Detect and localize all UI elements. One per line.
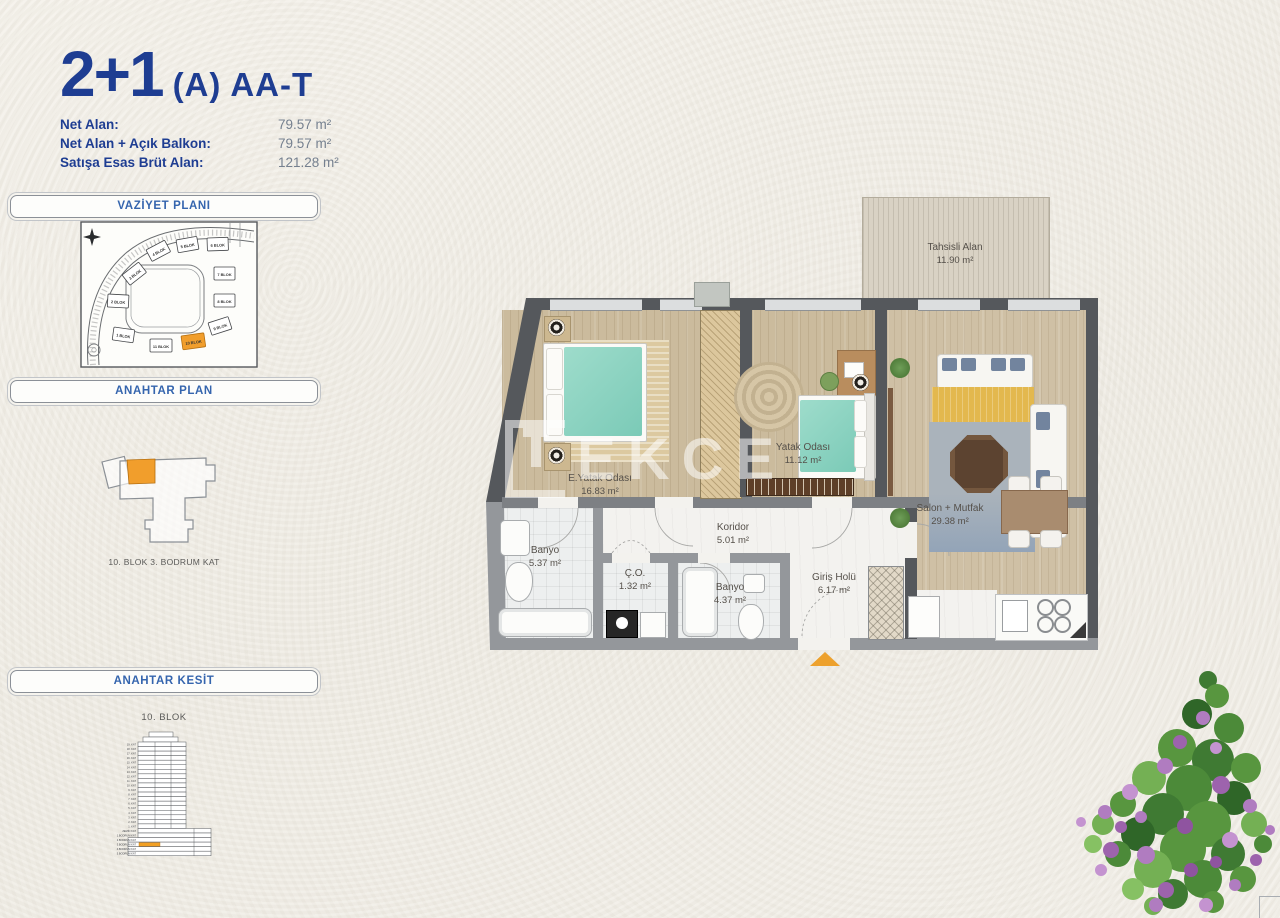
- bedroom-label: Yatak Odası 11.12 m²: [753, 442, 853, 466]
- washing-machine: [606, 610, 638, 638]
- bath2-toilet: [738, 604, 764, 640]
- plant-foliage: [1084, 671, 1272, 915]
- dining-chair-3: [1008, 530, 1030, 548]
- key-plan-highlighted-unit: [127, 459, 155, 484]
- bathroom2-label: Banyo 4.37 m²: [695, 582, 765, 606]
- window-living-2: [1008, 299, 1080, 311]
- sofa-pillow-3: [991, 358, 1006, 371]
- key-plan-drawing: [88, 452, 240, 550]
- bathroom1-door-gap: [538, 497, 578, 508]
- left-diagonal-wall: [486, 298, 544, 502]
- svg-text:2.BODRUM KAT: 2.BODRUM KAT: [117, 838, 137, 842]
- svg-text:3.BODRUM KAT: 3.BODRUM KAT: [117, 843, 137, 847]
- roof-top: [149, 732, 173, 737]
- window-living-1: [918, 299, 980, 311]
- bedroom-door-gap: [812, 497, 852, 508]
- master-bed-blanket: [564, 347, 642, 436]
- stove-icon: [1036, 598, 1070, 632]
- bedroom-pillow-2: [854, 436, 867, 468]
- entrance-arrow-icon: [810, 652, 840, 666]
- svg-text:14. KAT: 14. KAT: [127, 765, 137, 769]
- yellow-rug: [932, 387, 1034, 422]
- svg-text:4.BODRUM KAT: 4.BODRUM KAT: [117, 847, 137, 851]
- frame-line-vertical: [1259, 896, 1260, 918]
- net-area-value: 79.57 m²: [278, 117, 331, 132]
- shaft-box: [694, 282, 730, 307]
- master-pillow-1: [546, 348, 563, 390]
- dining-chair-4: [1040, 530, 1062, 548]
- svg-text:1. KAT: 1. KAT: [128, 824, 136, 828]
- svg-text:2 BLOK: 2 BLOK: [111, 299, 126, 305]
- bathroom1-label: Banyo 5.37 m²: [510, 545, 580, 569]
- sofa-pillow-4: [1010, 358, 1025, 371]
- net-balcony-area-value: 79.57 m²: [278, 136, 331, 151]
- svg-text:ZEMİN KAT: ZEMİN KAT: [122, 828, 136, 833]
- hall-living-door-gap: [905, 522, 917, 558]
- master-lamp-1-icon: [548, 319, 565, 336]
- svg-text:10. KAT: 10. KAT: [127, 783, 137, 787]
- bath2-hall-wall: [780, 563, 790, 639]
- entrance-hall-label: Giriş Holü 6.17 m²: [792, 572, 876, 596]
- bedroom-living-wall: [875, 310, 887, 497]
- svg-text:8 BLOK: 8 BLOK: [217, 299, 231, 304]
- key-plan-caption: 10. BLOK 3. BODRUM KAT: [10, 557, 318, 567]
- laundry-cabinet: [640, 612, 666, 638]
- master-lamp-2-icon: [548, 447, 565, 464]
- key-section-drawing: 19. KAT18. KAT17. KAT16. KAT15. KAT14. K…: [108, 730, 232, 864]
- title-room-count: 2+1: [60, 38, 163, 110]
- window-master: [550, 299, 642, 311]
- net-balcony-area-row: Net Alan + Açık Balkon: 79.57 m²: [60, 136, 360, 155]
- entrance-opening: [798, 638, 850, 650]
- frame-line-horizontal: [1260, 896, 1280, 897]
- bedroom-pillow-1: [854, 400, 867, 432]
- key-plan-section-header: ANAHTAR PLAN: [10, 380, 318, 403]
- highlighted-block: 10 BLOK: [181, 333, 206, 350]
- svg-text:13. KAT: 13. KAT: [127, 770, 137, 774]
- area-info-table: Net Alan: 79.57 m² Net Alan + Açık Balko…: [60, 117, 360, 174]
- svg-text:12. KAT: 12. KAT: [127, 774, 137, 778]
- window-bedroom: [765, 299, 861, 311]
- svg-text:5.BODRUM KAT: 5.BODRUM KAT: [117, 852, 137, 856]
- svg-text:11 BLOK: 11 BLOK: [153, 344, 169, 349]
- bedroom-desk-chair: [820, 372, 839, 391]
- kitchen-corner-unit: [1070, 622, 1086, 638]
- fridge: [908, 596, 940, 638]
- site-plan-section-header: VAZİYET PLANI: [10, 195, 318, 218]
- bedroom-round-rug: [734, 362, 804, 432]
- net-area-row: Net Alan: 79.57 m²: [60, 117, 360, 136]
- master-bedroom-label: E.Yatak Odası 16.83 m²: [545, 473, 655, 497]
- bedroom-kilim-rug: [746, 478, 854, 496]
- plant-pot-1-icon: [890, 358, 910, 378]
- svg-text:18. KAT: 18. KAT: [127, 747, 137, 751]
- svg-text:15. KAT: 15. KAT: [127, 761, 137, 765]
- floor-plan: Tahsisli Alan 11.90 m²: [450, 190, 1100, 682]
- svg-text:7 BLOK: 7 BLOK: [217, 272, 231, 277]
- laundry-door-gap: [612, 553, 650, 563]
- svg-text:11. KAT: 11. KAT: [127, 779, 136, 783]
- sofa-pillow-1: [942, 358, 957, 371]
- gross-area-row: Satışa Esas Brüt Alan: 121.28 m²: [60, 155, 360, 174]
- svg-text:3. KAT: 3. KAT: [128, 815, 136, 819]
- bathroom2-door-gap: [698, 553, 730, 563]
- highlighted-floor: [139, 843, 160, 847]
- brochure-page: { "page": { "title_number": "2+1", "titl…: [0, 0, 1280, 918]
- bedroom-lamp-icon: [852, 374, 869, 391]
- key-section-section-header: ANAHTAR KESİT: [10, 670, 318, 693]
- svg-text:9. KAT: 9. KAT: [128, 788, 136, 792]
- tv-unit: [888, 388, 893, 496]
- sofa-pillow-2: [961, 358, 976, 371]
- net-area-label: Net Alan:: [60, 117, 119, 132]
- dining-table: [1001, 490, 1068, 534]
- svg-text:6 BLOK: 6 BLOK: [211, 242, 226, 248]
- corridor-label: Koridor 5.01 m²: [678, 522, 788, 546]
- svg-text:8. KAT: 8. KAT: [128, 793, 136, 797]
- svg-text:7. KAT: 7. KAT: [128, 797, 136, 801]
- svg-text:16. KAT: 16. KAT: [127, 756, 137, 760]
- svg-text:6. KAT: 6. KAT: [128, 802, 136, 806]
- bath1-bathtub: [498, 608, 592, 637]
- coffee-table: [950, 435, 1008, 493]
- master-door-gap: [655, 497, 693, 508]
- net-balcony-area-label: Net Alan + Açık Balkon:: [60, 136, 211, 151]
- svg-text:4. KAT: 4. KAT: [128, 811, 136, 815]
- title-type-code: (A) AA-T: [173, 66, 314, 103]
- key-section-caption: 10. BLOK: [10, 712, 318, 723]
- site-plan-drawing: 1 BLOK 2 BLOK 3 BLOK 4 BLOK 5 BLOK 6 BLO…: [80, 221, 258, 368]
- decorative-plant: [1045, 656, 1280, 918]
- svg-text:2. KAT: 2. KAT: [128, 820, 136, 824]
- kitchen-sink: [1002, 600, 1028, 632]
- gross-area-value: 121.28 m²: [278, 155, 339, 170]
- roof-mid: [143, 737, 178, 742]
- svg-text:17. KAT: 17. KAT: [127, 752, 137, 756]
- page-title: 2+1(A) AA-T: [60, 42, 313, 106]
- living-kitchen-label: Salon + Mutfak 29.38 m²: [895, 503, 1005, 527]
- svg-text:19. KAT: 19. KAT: [127, 743, 137, 747]
- svg-text:5. KAT: 5. KAT: [128, 806, 136, 810]
- master-pillow-2: [546, 394, 563, 436]
- laundry-label: Ç.O. 1.32 m²: [600, 568, 670, 592]
- svg-text:1.BODRUM KAT: 1.BODRUM KAT: [117, 834, 137, 838]
- sofa-right-pillow-1: [1036, 412, 1050, 430]
- floor-rows: 19. KAT18. KAT17. KAT16. KAT15. KAT14. K…: [117, 742, 211, 856]
- gross-area-label: Satışa Esas Brüt Alan:: [60, 155, 204, 170]
